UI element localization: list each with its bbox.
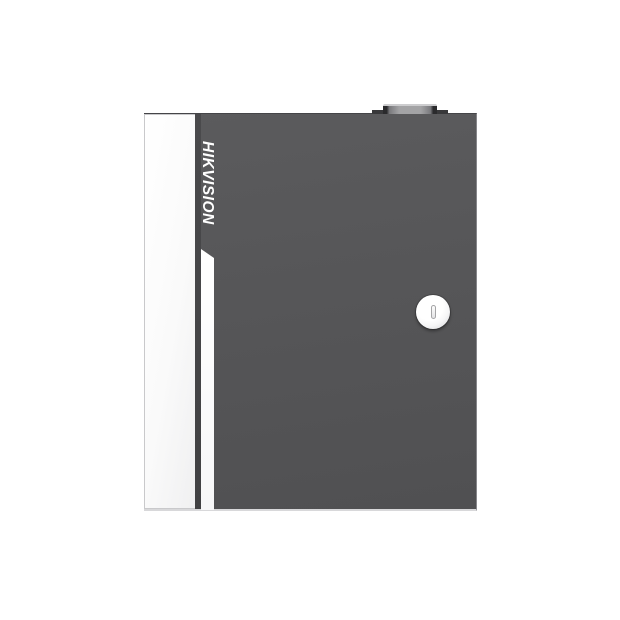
enclosure-side-panel — [144, 114, 195, 509]
top-hinge-knuckle — [383, 104, 437, 114]
brand-logo: HIKVISION — [200, 141, 215, 225]
accent-stripe — [201, 249, 214, 510]
product-photo: HIKVISION — [0, 0, 620, 620]
cam-lock — [416, 295, 450, 329]
keyhole-icon — [431, 305, 436, 319]
access-controller-enclosure: HIKVISION — [144, 113, 477, 511]
